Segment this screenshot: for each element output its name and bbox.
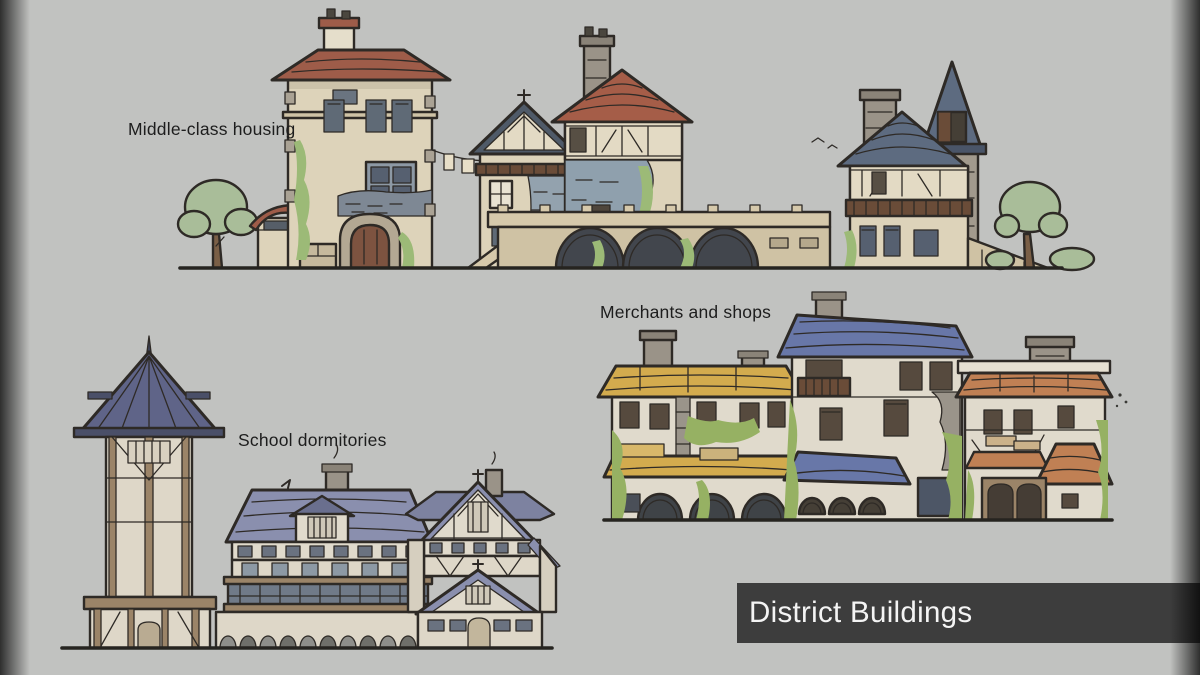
title-card: District Buildings [737,583,1200,643]
concept-art-board: Middle-class housing Merchants and shops… [0,0,1200,675]
bridge [468,205,830,268]
middle-class-housing-illustration [178,9,1094,270]
dormitory-main-block [216,444,432,648]
tower-house [272,9,450,268]
district-buildings-illustration [0,0,1200,675]
tree-right [986,182,1094,270]
yellow-roof-shop [598,331,804,520]
label-school-dormitories: School dormitories [238,430,387,451]
blue-roof-shop [778,292,972,520]
title-card-text: District Buildings [749,596,972,630]
tree-left [178,180,257,268]
school-dormitories-illustration [62,336,560,648]
orange-roof-shop [956,337,1127,520]
merchants-and-shops-illustration [598,292,1127,520]
bell-tower [74,336,224,648]
label-merchants-and-shops: Merchants and shops [600,302,771,323]
dormitory-gable-house [406,452,560,648]
birds [812,138,837,148]
label-middle-class-housing: Middle-class housing [128,119,295,140]
